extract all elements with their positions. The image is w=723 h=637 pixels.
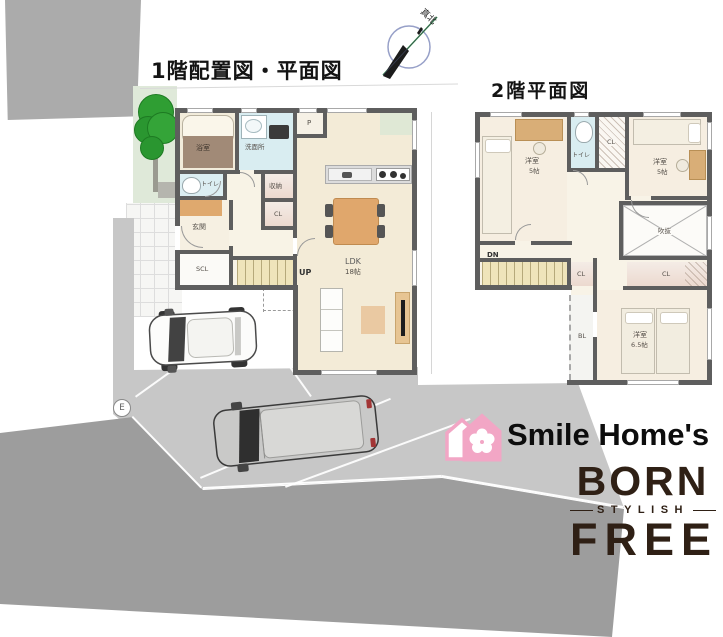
car-gray-van bbox=[205, 388, 387, 474]
stove bbox=[376, 168, 410, 181]
wall-segment bbox=[261, 198, 297, 202]
wall-segment bbox=[175, 285, 297, 290]
tv-board bbox=[395, 292, 410, 344]
ldk-label: LDK bbox=[345, 258, 361, 266]
window bbox=[707, 308, 712, 360]
wall-segment bbox=[475, 285, 572, 290]
bath-floor-mat bbox=[183, 136, 233, 168]
closet-1f: CL bbox=[265, 202, 293, 226]
wall-segment bbox=[651, 196, 712, 200]
wall-segment bbox=[593, 290, 597, 312]
wall-segment bbox=[567, 258, 571, 290]
balcony-label: BL bbox=[578, 333, 586, 340]
bedroom-left-label: 洋室 bbox=[525, 158, 539, 165]
washroom-label: 洗面所 bbox=[245, 144, 265, 151]
wall-segment bbox=[297, 134, 323, 138]
wall-segment bbox=[595, 117, 599, 170]
wall-segment bbox=[619, 201, 623, 260]
window bbox=[627, 380, 679, 385]
floor1-title: 1階配置図・平面図 bbox=[151, 55, 343, 85]
window bbox=[490, 112, 522, 117]
window bbox=[321, 370, 377, 375]
shoe-closet-label: SCL bbox=[196, 266, 208, 273]
refrigerator-space bbox=[380, 113, 412, 135]
entrance-approach-tiles bbox=[126, 203, 182, 317]
bedroom-right-label: 洋室 bbox=[653, 159, 667, 166]
dining-table bbox=[333, 198, 379, 245]
washing-machine bbox=[269, 125, 289, 139]
bedroom-left: 洋室 5帖 bbox=[480, 117, 567, 241]
wall-segment bbox=[180, 196, 227, 200]
wall-segment bbox=[480, 258, 567, 262]
pantry-label: P bbox=[307, 120, 311, 127]
window bbox=[412, 250, 417, 286]
smile-homes-logo-icon bbox=[442, 407, 506, 467]
burner bbox=[400, 173, 406, 179]
bed bbox=[656, 308, 690, 374]
wall-segment bbox=[623, 286, 712, 290]
chair bbox=[676, 159, 689, 172]
kitchen-counter bbox=[325, 165, 412, 184]
window bbox=[187, 108, 213, 113]
window bbox=[412, 120, 417, 150]
stylish-rule bbox=[693, 510, 716, 511]
toilet-room-2f: トイレ bbox=[571, 117, 595, 168]
bedroom-right-size: 5帖 bbox=[657, 169, 668, 176]
window bbox=[574, 112, 589, 117]
floor1-plan: 浴室 洗面所 P トイレ 収納 CL 玄関 S bbox=[175, 108, 417, 375]
window bbox=[643, 112, 681, 117]
floorplan-page: E bbox=[0, 0, 723, 637]
window bbox=[707, 122, 712, 150]
brand-name: Smile Home's bbox=[507, 417, 709, 453]
chair bbox=[533, 142, 546, 155]
closet-wide-label: CL bbox=[662, 271, 670, 278]
floor2-plan: 洋室 5帖 トイレ CL 洋室 5帖 吹抜 DN bbox=[475, 112, 712, 385]
dining-chair bbox=[377, 204, 385, 217]
closet-mid-label: CL bbox=[577, 271, 585, 278]
closet-mid: CL bbox=[571, 262, 593, 286]
pillow bbox=[688, 123, 701, 143]
balcony: BL bbox=[569, 295, 595, 380]
wall-segment bbox=[531, 241, 572, 245]
storage-room: 収納 bbox=[265, 174, 293, 198]
wall-segment bbox=[293, 113, 297, 172]
toilet-label-2f: トイレ bbox=[572, 153, 590, 159]
wall-segment bbox=[567, 117, 571, 170]
bedroom-main-label: 洋室 bbox=[633, 332, 647, 339]
stylish-rule bbox=[570, 510, 593, 511]
closet-top: CL bbox=[599, 117, 625, 168]
window bbox=[475, 142, 480, 178]
desk bbox=[689, 150, 706, 180]
ldk-size-label: 18帖 bbox=[345, 269, 361, 276]
bed bbox=[482, 136, 512, 234]
bedroom-right: 洋室 5帖 bbox=[629, 117, 707, 196]
wall-segment bbox=[593, 337, 597, 385]
burner bbox=[390, 171, 397, 178]
wall-segment bbox=[223, 174, 227, 198]
closet-hatch bbox=[685, 262, 707, 286]
void-label: 吹抜 bbox=[657, 228, 672, 235]
window bbox=[327, 108, 367, 113]
dining-chair bbox=[325, 225, 333, 238]
tv bbox=[401, 300, 405, 336]
wall-segment bbox=[235, 113, 239, 172]
wall-segment bbox=[229, 200, 233, 230]
window bbox=[241, 108, 257, 113]
sink-faucet bbox=[342, 172, 352, 178]
window bbox=[299, 108, 317, 113]
tree-foliage bbox=[140, 136, 164, 160]
sofa-cushion-line bbox=[321, 330, 342, 331]
pillow bbox=[625, 312, 653, 324]
entrance-mat bbox=[180, 200, 222, 216]
burner bbox=[379, 171, 386, 178]
wall-segment bbox=[323, 113, 327, 138]
born-text: BORN bbox=[570, 461, 716, 502]
storage-label: 収納 bbox=[269, 183, 282, 190]
compass-icon bbox=[375, 3, 450, 85]
wall-segment bbox=[229, 246, 233, 288]
desk bbox=[515, 119, 563, 141]
free-text: FREE bbox=[570, 517, 716, 562]
bathroom: 浴室 bbox=[180, 113, 235, 170]
wall-segment bbox=[233, 256, 297, 260]
shoe-closet: SCL bbox=[180, 254, 229, 285]
closet-wide: CL bbox=[627, 262, 707, 286]
wall-segment bbox=[475, 241, 515, 245]
bedroom-left-size: 5帖 bbox=[529, 168, 540, 175]
bath-label: 浴室 bbox=[196, 145, 210, 152]
stairs-up bbox=[237, 260, 297, 285]
bed bbox=[633, 119, 701, 145]
closet-1f-label: CL bbox=[274, 211, 282, 218]
bedroom-main: 洋室 6.5帖 bbox=[597, 290, 707, 380]
wall-segment bbox=[293, 285, 298, 375]
born-free-logo: BORN STYLISH FREE bbox=[570, 461, 716, 562]
dining-chair bbox=[325, 204, 333, 217]
sofa bbox=[320, 288, 343, 352]
balcony-door-opening bbox=[593, 312, 597, 337]
floor2-title: 2階平面図 bbox=[491, 76, 590, 103]
wall-segment bbox=[261, 226, 297, 230]
pillow bbox=[660, 312, 688, 324]
stairs-up-label: UP bbox=[299, 269, 311, 277]
pillow bbox=[485, 139, 511, 153]
washroom: 洗面所 bbox=[239, 113, 293, 170]
pantry: P bbox=[297, 113, 323, 134]
window bbox=[707, 216, 712, 250]
utility-pole-marker: E bbox=[113, 399, 131, 417]
toilet-icon bbox=[575, 121, 593, 143]
entrance-door-opening bbox=[175, 226, 180, 250]
wall-segment bbox=[619, 256, 712, 260]
utility-pole-label: E bbox=[119, 403, 125, 413]
dining-chair bbox=[377, 225, 385, 238]
wall-segment bbox=[475, 112, 480, 290]
sofa-cushion-line bbox=[321, 309, 342, 310]
bedroom-main-size: 6.5帖 bbox=[631, 342, 648, 349]
toilet-icon bbox=[182, 177, 201, 194]
closet-top-label: CL bbox=[607, 139, 615, 146]
wall-segment bbox=[180, 170, 240, 174]
wall-segment bbox=[625, 117, 629, 200]
wall-segment bbox=[180, 250, 229, 254]
sink-bowl bbox=[245, 119, 262, 133]
rug bbox=[361, 306, 385, 334]
entrance-hall: 玄関 bbox=[180, 200, 229, 250]
stairs-down bbox=[482, 262, 567, 285]
wall-segment bbox=[593, 258, 597, 290]
site-boundary-line bbox=[431, 112, 432, 374]
neighbor-block bbox=[5, 0, 141, 120]
